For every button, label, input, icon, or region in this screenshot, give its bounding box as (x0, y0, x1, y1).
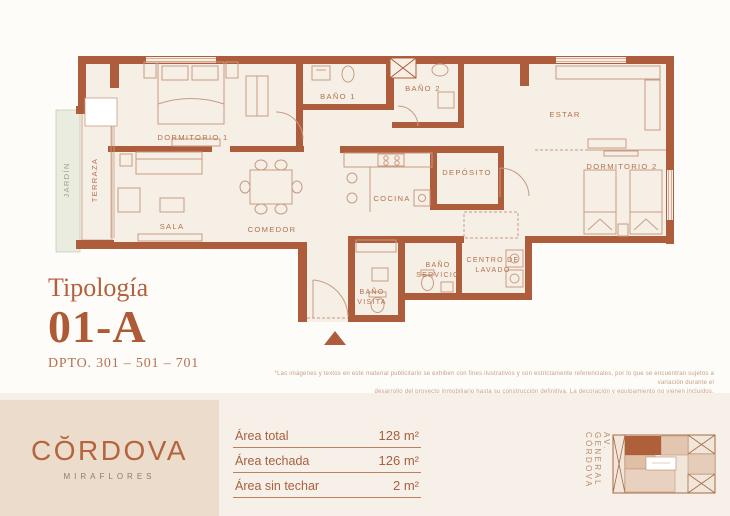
brand-box: CŎRDOVA MIRAFLORES (0, 400, 219, 516)
area-row-sin-techar: Área sin techar 2 m² (233, 473, 421, 498)
area-label: Área sin techar (235, 479, 319, 493)
disclaimer-line-1: *Las imágenes y textos en este material … (275, 371, 714, 386)
area-value: 126 m² (379, 453, 419, 468)
room-label-bano-servicio-1: BAÑO (425, 260, 450, 269)
room-label-sala: SALA (160, 222, 185, 231)
areas-table: Área total 128 m² Área techada 126 m² Ár… (233, 423, 421, 498)
room-label-dormitorio-1: DORMITORIO 1 (157, 133, 228, 142)
room-label-bano-visita-1: BAÑO (359, 287, 384, 296)
entrance-arrow (324, 331, 346, 345)
typology-label: Tipología (48, 274, 199, 302)
room-label-centro-lavado-2: LAVADO (475, 267, 510, 274)
brand-logo: CŎRDOVA (31, 435, 188, 467)
room-label-bano-visita-2: VISITA (357, 299, 386, 306)
area-row-techada: Área techada 126 m² (233, 448, 421, 473)
room-label-comedor: COMEDOR (248, 225, 297, 234)
room-label-estar: ESTAR (549, 110, 580, 119)
closet-box (85, 98, 117, 126)
typology-code: 01-A (48, 302, 199, 352)
room-label-deposito: DEPÓSITO (442, 168, 492, 177)
area-label: Área techada (235, 454, 309, 468)
area-label: Área total (235, 429, 289, 443)
area-row-total: Área total 128 m² (233, 423, 421, 448)
room-label-dormitorio-2: DORMITORIO 2 (586, 162, 657, 171)
typology-units: DPTO. 301 – 501 – 701 (48, 356, 199, 372)
area-value: 128 m² (379, 428, 419, 443)
room-label-bano-2: BAÑO 2 (405, 84, 441, 93)
room-label-terraza: TERRAZA (90, 158, 99, 203)
room-label-cocina: COCINA (373, 194, 410, 203)
keyplan-unit-other-3 (661, 436, 688, 455)
keyplan-unit-other-4 (688, 454, 715, 474)
brand-tagline: MIRAFLORES (63, 472, 155, 481)
keyplan-core (646, 457, 676, 470)
duct-shaft (390, 58, 416, 78)
room-label-bano-1: BAÑO 1 (320, 92, 356, 101)
typology-block: Tipología 01-A DPTO. 301 – 501 – 701 (48, 274, 199, 372)
street-label: AV. GENERAL CÓRDOVA (584, 432, 611, 510)
room-label-jardin: JARDÍN (62, 162, 71, 197)
room-label-centro-lavado-1: CENTRO DE (467, 257, 520, 264)
room-label-bano-servicio-2: SERVICIO (416, 272, 460, 279)
keyplan-unit-other-2 (625, 469, 675, 492)
keyplan-highlighted-unit (625, 436, 661, 455)
keyplan-minimap (612, 434, 716, 494)
flyer-canvas: DORMITORIO 1 SALA COMEDOR BAÑO 1 BAÑO 2 … (0, 0, 730, 516)
area-value: 2 m² (393, 478, 419, 493)
